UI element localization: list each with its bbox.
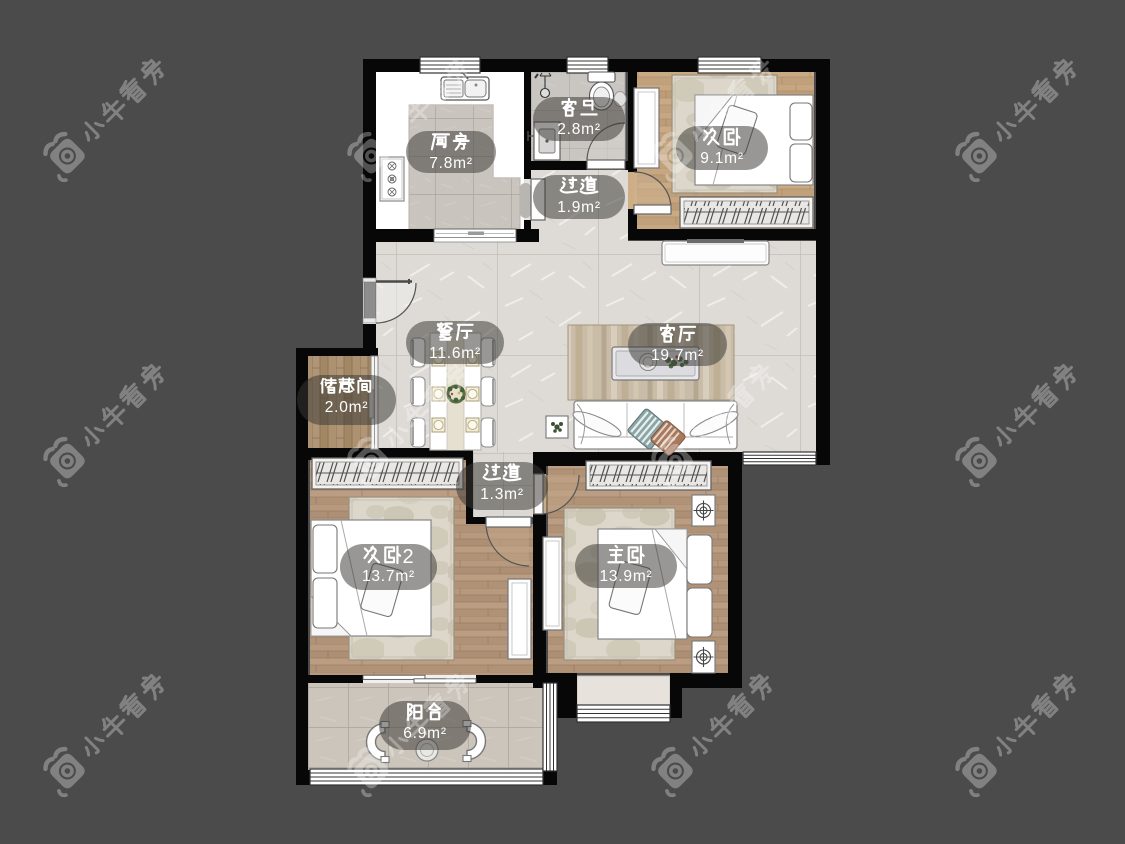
svg-text:13.9m²: 13.9m² [599,568,652,585]
svg-text:1.9m²: 1.9m² [557,199,601,216]
svg-text:2.8m²: 2.8m² [557,121,601,138]
svg-text:2.0m²: 2.0m² [325,399,369,416]
svg-text:13.7m²: 13.7m² [362,568,415,585]
svg-text:1.3m²: 1.3m² [480,486,524,503]
svg-text:2: 2 [402,546,413,568]
svg-text:11.6m²: 11.6m² [429,345,481,362]
svg-text:7.8m²: 7.8m² [429,155,473,172]
svg-text:9.1m²: 9.1m² [700,150,744,167]
svg-text:19.7m²: 19.7m² [651,347,704,364]
